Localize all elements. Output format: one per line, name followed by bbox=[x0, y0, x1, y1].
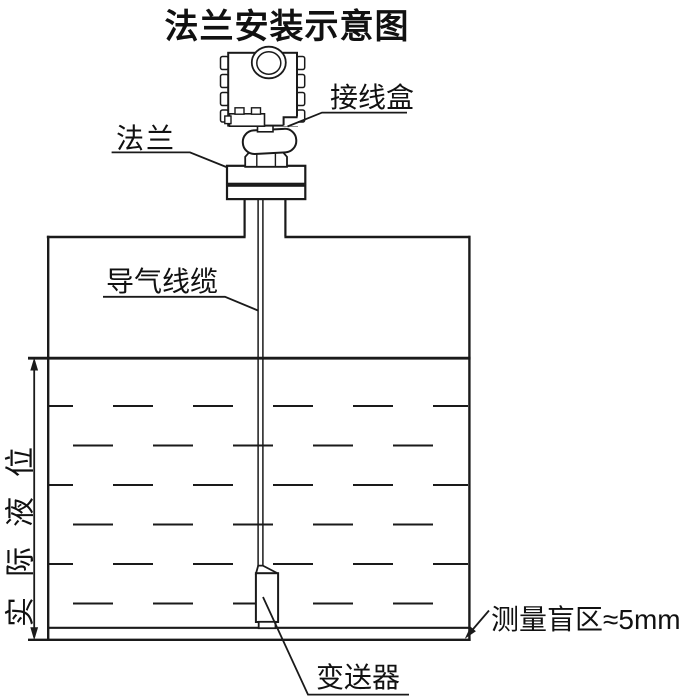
label-actual-level: 实际液位 bbox=[5, 427, 38, 627]
suspension-cable bbox=[258, 199, 263, 566]
blind-zone-arrow-shaft bbox=[471, 611, 489, 632]
flange-assembly bbox=[227, 166, 305, 237]
label-blind-zone: 测量盲区≈5mm bbox=[491, 604, 681, 635]
leader-flange bbox=[112, 152, 228, 167]
label-junction-box: 接线盒 bbox=[330, 82, 414, 113]
label-transmitter: 变送器 bbox=[316, 662, 400, 693]
terminal-tab bbox=[252, 108, 261, 114]
tank bbox=[28, 236, 471, 641]
probe bbox=[256, 566, 278, 629]
dimension-arrow-down bbox=[30, 627, 38, 640]
terminal-block bbox=[230, 114, 265, 126]
flange-plate bbox=[227, 166, 305, 184]
terminal-tab bbox=[235, 108, 244, 114]
transmitter-head bbox=[221, 47, 305, 167]
leader-air-cable bbox=[103, 297, 258, 311]
flange-lower-plate bbox=[227, 186, 305, 199]
diagram-title: 法兰安装示意图 bbox=[165, 8, 410, 46]
flange-installation-diagram: 法兰安装示意图 接线盒 法兰 导气线缆 实际液位 测量盲区≈5mm 变送器 bbox=[0, 0, 700, 700]
label-air-cable: 导气线缆 bbox=[106, 266, 218, 297]
probe-foot bbox=[259, 622, 276, 628]
terminal-side-lug bbox=[225, 116, 231, 124]
probe-body bbox=[256, 573, 278, 622]
label-flange: 法兰 bbox=[116, 123, 176, 154]
